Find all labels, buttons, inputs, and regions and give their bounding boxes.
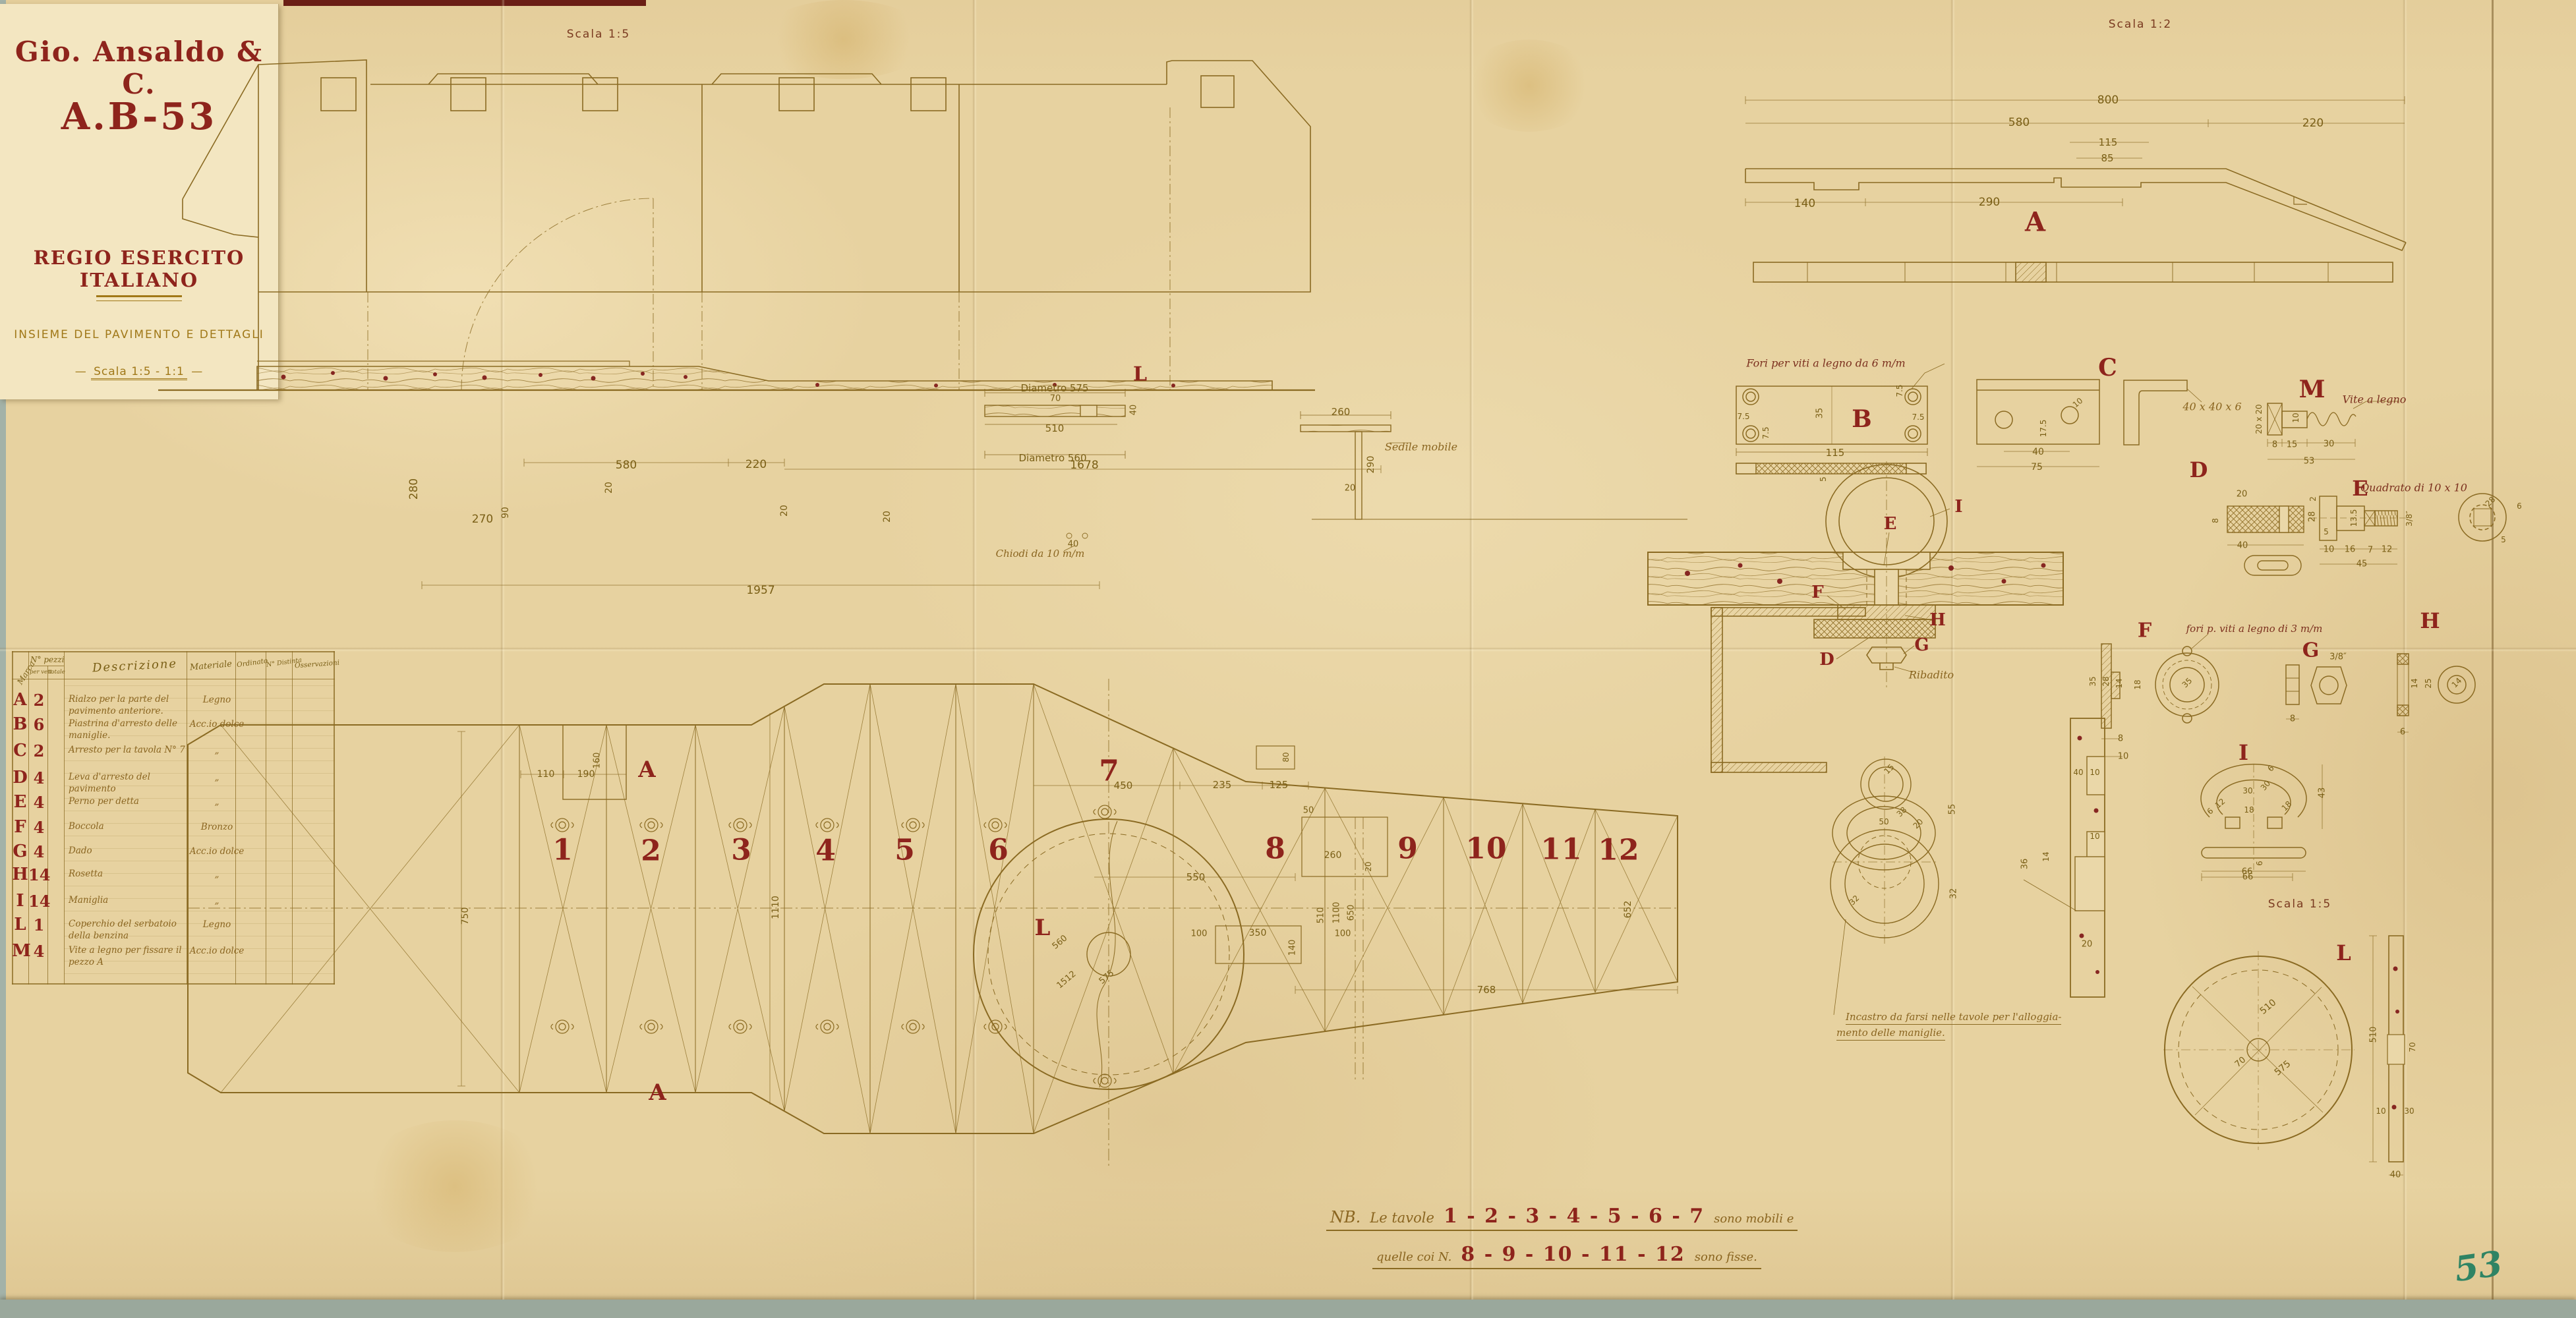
handle-glyph: [816, 1020, 838, 1033]
nb-text: sono fisse.: [1695, 1250, 1757, 1264]
nb-line-1: NB. Le tavole 1 - 2 - 3 - 4 - 5 - 6 - 7 …: [1326, 1205, 1798, 1231]
recess-note-line1: Incastro da farsi nelle tavole per l'all…: [1846, 1011, 2061, 1025]
handle-glyph: [902, 818, 924, 832]
handle-glyph: [1094, 805, 1116, 818]
blueprint-sheet: Gio. Ansaldo & C. A.B-53 REGIO ESERCITO …: [0, 0, 2576, 1318]
handle-glyph: [816, 818, 838, 832]
handle-glyph: [902, 1020, 924, 1033]
nb-text: Le tavole: [1370, 1210, 1434, 1226]
nb-text: sono mobili e: [1714, 1212, 1794, 1226]
nb-note: NB. Le tavole 1 - 2 - 3 - 4 - 5 - 6 - 7 …: [1326, 1205, 1788, 1269]
nb-board-numbers-fixed: 8 - 9 - 10 - 11 - 12: [1461, 1243, 1685, 1266]
nb-text: quelle coi N.: [1376, 1250, 1451, 1264]
handle-glyph: [729, 818, 751, 832]
recess-note: Incastro da farsi nelle tavole per l'all…: [1846, 1011, 2063, 1043]
nb-prefix: NB.: [1330, 1208, 1361, 1226]
handle-glyph: [1094, 1074, 1116, 1087]
handle-glyph: [551, 1020, 573, 1033]
handle-glyph: [640, 1020, 662, 1033]
handle-glyph: [729, 1020, 751, 1033]
handle-glyph: [984, 818, 1007, 832]
nb-board-numbers-movable: 1 - 2 - 3 - 4 - 5 - 6 - 7: [1444, 1205, 1705, 1228]
handle-glyph: [551, 818, 573, 832]
nb-line-2: quelle coi N. 8 - 9 - 10 - 11 - 12 sono …: [1372, 1243, 1761, 1269]
handle-glyph: [640, 818, 662, 832]
drawing-linework: [0, 0, 2576, 1318]
recess-note-line2: mento delle maniglie.: [1836, 1027, 1945, 1041]
